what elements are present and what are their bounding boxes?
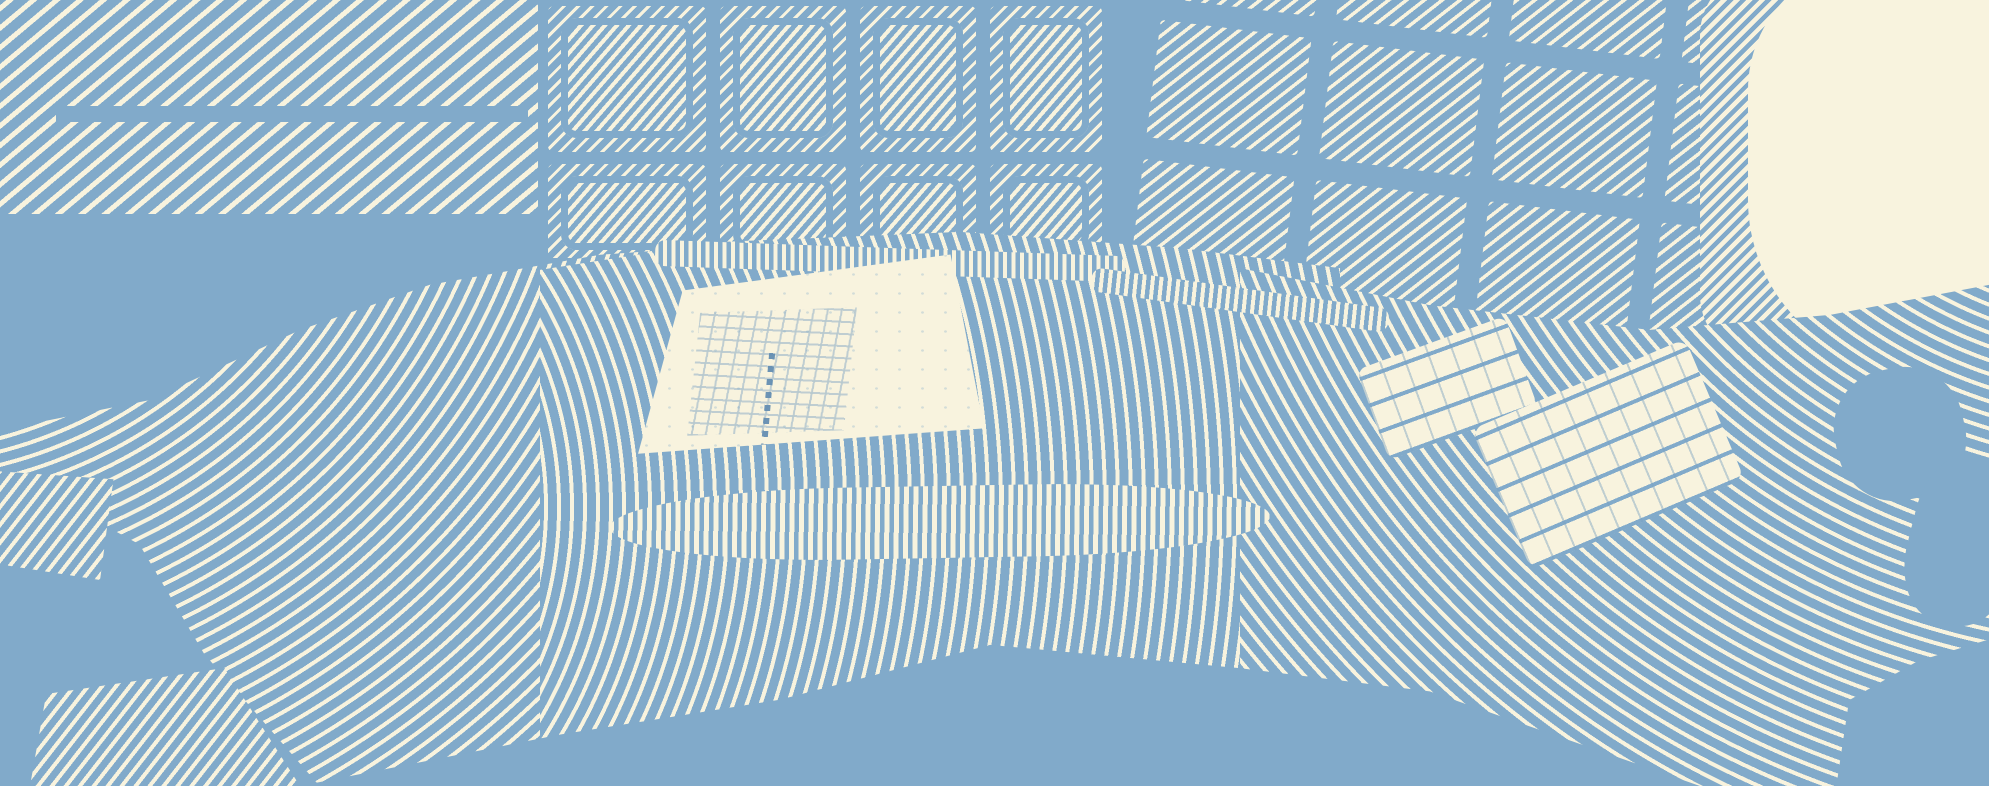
crt-monitor: [720, 6, 846, 152]
control-room-illustration: [0, 0, 1989, 786]
crt-monitor: [860, 6, 976, 152]
crt-screen: [873, 18, 963, 138]
wall-monitor: [1336, 0, 1501, 38]
wall-monitor: [1146, 20, 1311, 156]
large-wall-display: [0, 0, 538, 214]
crt-monitor-rack: [548, 6, 1108, 258]
wall-monitor: [1163, 0, 1328, 17]
wall-display-divider: [56, 106, 528, 122]
wall-monitor: [1319, 41, 1484, 177]
crt-screen: [733, 18, 833, 138]
crt-screen: [1003, 18, 1089, 138]
wall-monitor: [1509, 0, 1674, 59]
wall-monitor: [1492, 62, 1657, 198]
crt-monitor: [548, 6, 706, 152]
crt-monitor: [990, 6, 1102, 152]
crt-screen: [561, 176, 693, 250]
crt-screen: [561, 18, 693, 138]
